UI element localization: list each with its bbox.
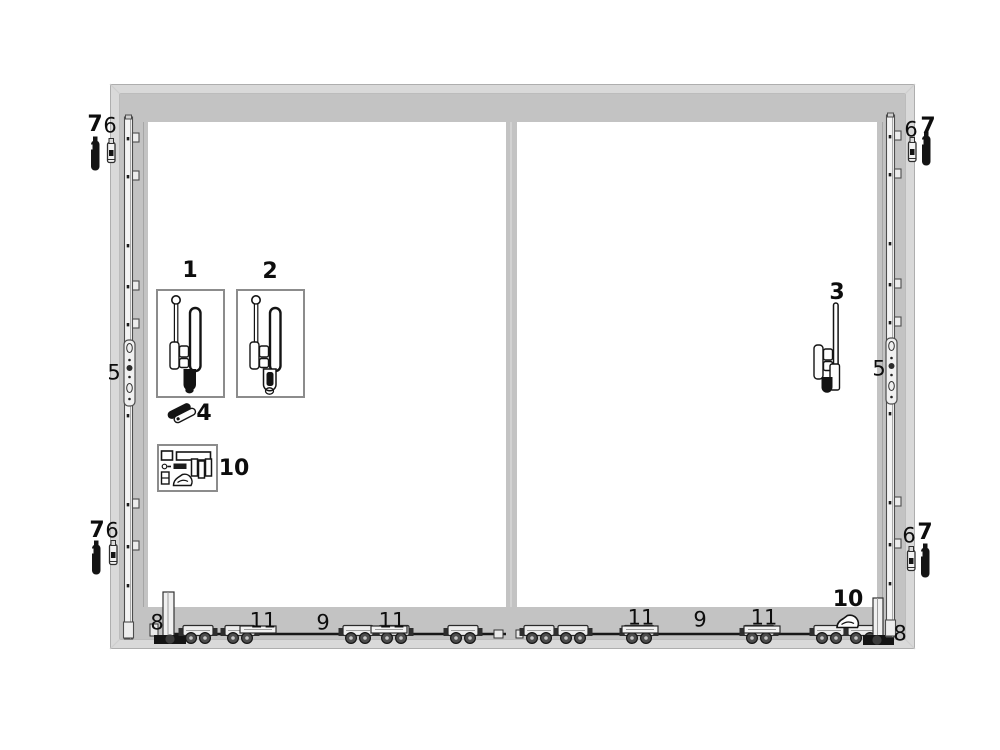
part-label-9: 9 [316, 613, 329, 634]
part-label-6: 6 [902, 526, 915, 547]
part-label-10: 10 [219, 458, 250, 480]
part-labels-layer: 766755123410766781191111911108 [0, 0, 1000, 750]
diagram-canvas: 766755123410766781191111911108 [0, 0, 1000, 750]
part-label-11: 11 [379, 611, 406, 632]
part-label-5: 5 [872, 359, 885, 380]
part-label-8: 8 [893, 624, 906, 645]
part-label-7: 7 [920, 116, 935, 138]
part-label-10: 10 [833, 589, 864, 611]
part-label-6: 6 [103, 116, 116, 137]
part-label-8: 8 [150, 613, 163, 634]
part-label-11: 11 [250, 611, 277, 632]
part-label-7: 7 [89, 520, 104, 542]
part-label-6: 6 [105, 521, 118, 542]
part-label-11: 11 [751, 608, 778, 629]
part-label-3: 3 [829, 282, 844, 304]
part-label-4: 4 [196, 403, 211, 425]
part-label-6: 6 [904, 120, 917, 141]
part-label-2: 2 [262, 261, 277, 283]
part-label-11: 11 [628, 608, 655, 629]
part-label-9: 9 [693, 610, 706, 631]
part-label-1: 1 [182, 260, 197, 282]
part-label-7: 7 [87, 114, 102, 136]
part-label-5: 5 [107, 363, 120, 384]
part-label-7: 7 [917, 522, 932, 544]
